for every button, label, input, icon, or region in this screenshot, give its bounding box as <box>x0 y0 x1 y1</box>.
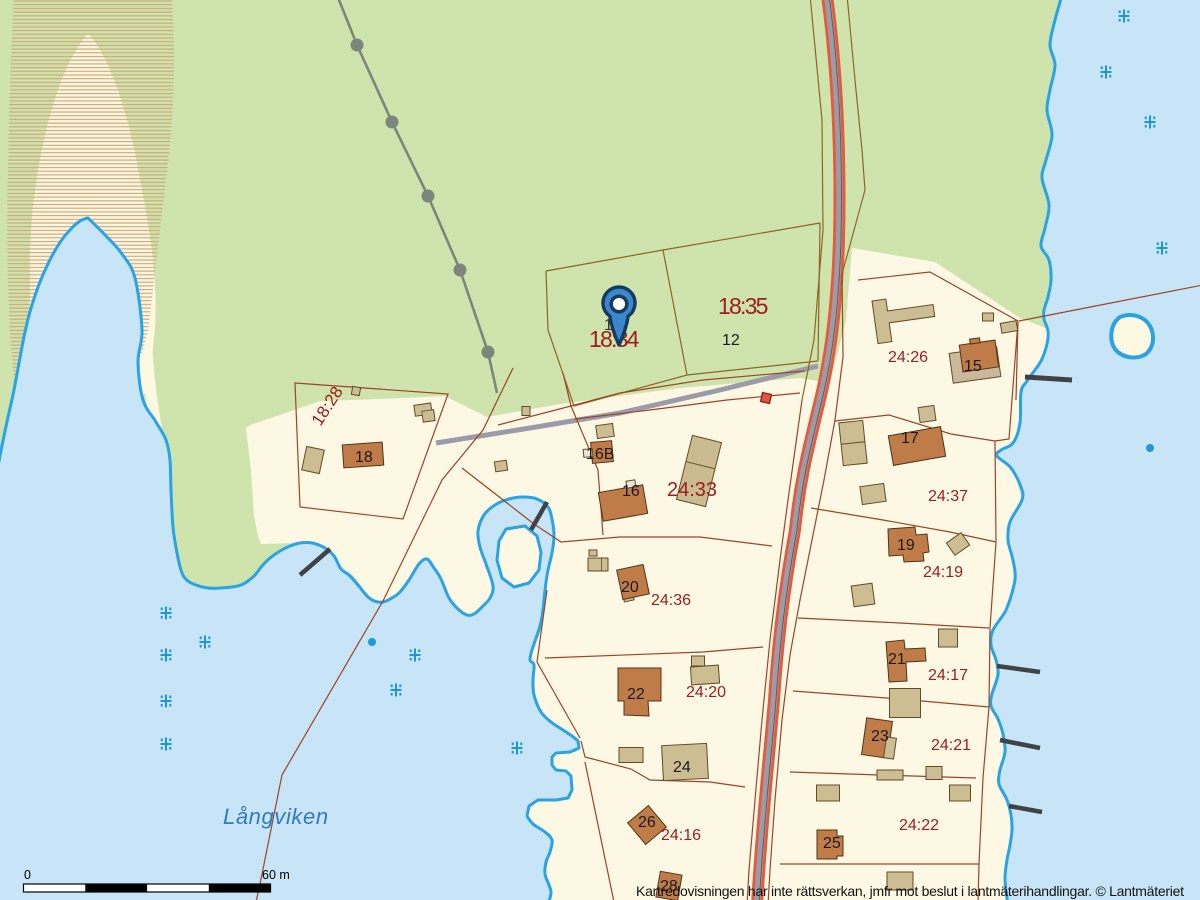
svg-text:17: 17 <box>901 430 919 447</box>
svg-text:24:36: 24:36 <box>651 592 691 609</box>
svg-text:24:21: 24:21 <box>931 737 971 754</box>
svg-text:19: 19 <box>897 537 915 554</box>
svg-text:Kartredovisningen har inte rät: Kartredovisningen har inte rättsverkan, … <box>636 883 1184 899</box>
svg-text:18: 18 <box>355 449 373 466</box>
svg-text:24:20: 24:20 <box>686 684 726 701</box>
svg-text:24:16: 24:16 <box>661 827 701 844</box>
svg-text:12: 12 <box>722 332 740 349</box>
svg-text:18:35: 18:35 <box>718 293 768 319</box>
svg-text:22: 22 <box>627 686 645 703</box>
svg-text:60 m: 60 m <box>262 868 290 882</box>
svg-text:24:17: 24:17 <box>928 667 968 684</box>
svg-text:24:26: 24:26 <box>888 349 928 366</box>
svg-text:16: 16 <box>622 483 640 500</box>
svg-text:23: 23 <box>871 728 889 745</box>
svg-text:24: 24 <box>673 759 691 776</box>
svg-text:21: 21 <box>888 651 906 668</box>
svg-text:24:19: 24:19 <box>923 564 963 581</box>
svg-text:20: 20 <box>621 579 639 596</box>
svg-text:24:33: 24:33 <box>667 479 717 501</box>
svg-text:0: 0 <box>24 868 31 882</box>
svg-text:25: 25 <box>823 835 841 852</box>
svg-text:16B: 16B <box>586 446 614 463</box>
svg-text:15: 15 <box>964 358 982 375</box>
svg-text:24:37: 24:37 <box>928 488 968 505</box>
svg-text:24:22: 24:22 <box>899 817 939 834</box>
svg-text:Långviken: Långviken <box>223 804 329 829</box>
svg-text:26: 26 <box>638 814 656 831</box>
